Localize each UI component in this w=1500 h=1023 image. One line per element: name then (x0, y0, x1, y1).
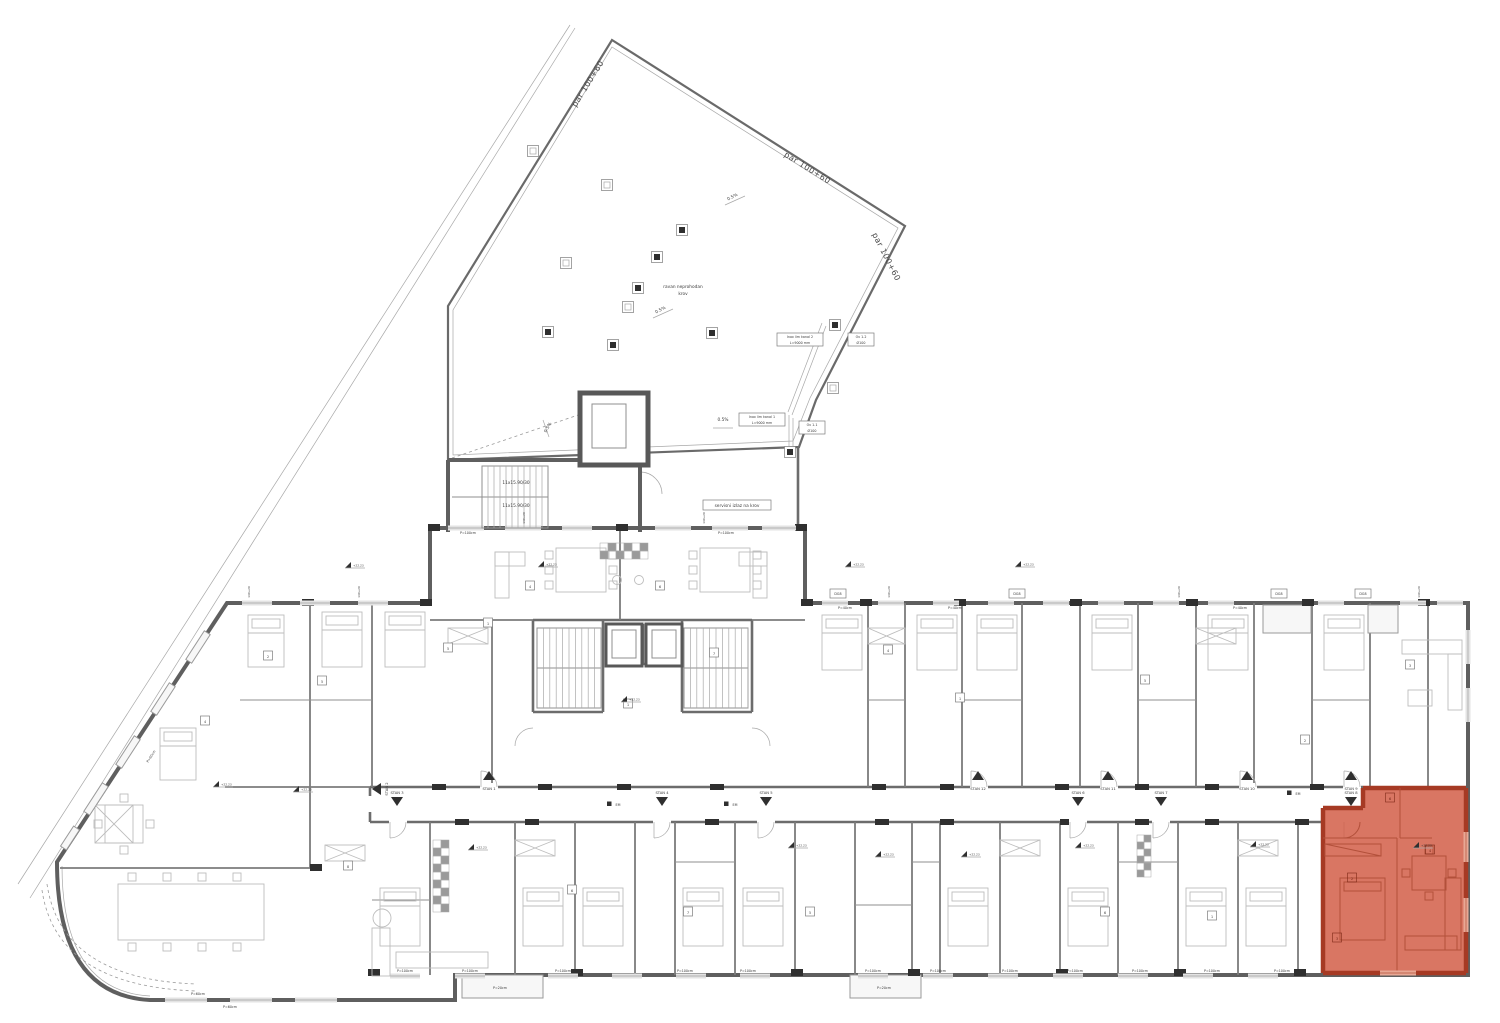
svg-text:4: 4 (529, 585, 531, 589)
svg-text:Ø100: Ø100 (808, 428, 817, 433)
svg-text:L=9000 mm: L=9000 mm (752, 421, 772, 425)
svg-text:3: 3 (1409, 664, 1411, 668)
svg-text:8: 8 (347, 865, 349, 869)
svg-text:STAN 7: STAN 7 (1154, 791, 1168, 795)
svg-text:+22.23: +22.23 (853, 563, 864, 567)
svg-text:6: 6 (1104, 911, 1106, 915)
svg-text:3: 3 (1336, 937, 1338, 941)
svg-text:5: 5 (447, 647, 449, 651)
svg-text:4: 4 (887, 649, 889, 653)
svg-text:P=40cm: P=40cm (1233, 606, 1247, 610)
svg-text:1: 1 (487, 622, 489, 626)
svg-text:+22.23: +22.23 (629, 698, 640, 702)
svg-text:2: 2 (1351, 877, 1353, 881)
svg-text:5: 5 (809, 911, 811, 915)
svg-text:P=100cm: P=100cm (397, 969, 413, 973)
svg-text:krov: krov (678, 291, 688, 297)
svg-text:P=100cm: P=100cm (1204, 969, 1220, 973)
svg-text:Inox lim kanal 1: Inox lim kanal 1 (749, 415, 775, 419)
svg-text:L=9000 mm: L=9000 mm (790, 341, 810, 345)
svg-text:+22.23: +22.23 (1023, 563, 1034, 567)
svg-text:P=100cm: P=100cm (740, 969, 756, 973)
svg-text:STAN 5: STAN 5 (759, 791, 773, 795)
svg-text:P=20cm: P=20cm (877, 986, 891, 990)
svg-text:7: 7 (713, 652, 715, 656)
svg-text:P=100cm: P=100cm (1067, 969, 1083, 973)
svg-text:1: 1 (1211, 915, 1213, 919)
svg-text:STAN 6: STAN 6 (1071, 791, 1085, 795)
svg-text:STAN 3: STAN 3 (390, 791, 404, 795)
svg-text:4: 4 (204, 720, 206, 724)
svg-text:140+20: 140+20 (887, 586, 891, 598)
svg-text:STAN 8: STAN 8 (1344, 791, 1358, 795)
svg-text:2: 2 (267, 655, 269, 659)
svg-text:P=100cm: P=100cm (1002, 969, 1018, 973)
svg-text:11x15.90/30: 11x15.90/30 (502, 503, 529, 509)
svg-text:11x15.90/30: 11x15.90/30 (502, 480, 529, 486)
svg-text:6: 6 (571, 889, 573, 893)
svg-text:+22.23: +22.23 (353, 564, 364, 568)
svg-text:6: 6 (1389, 797, 1391, 801)
svg-text:+22.23: +22.23 (1258, 843, 1269, 847)
svg-text:5: 5 (1144, 679, 1146, 683)
building-structure (18, 25, 1468, 1000)
svg-text:P=100cm: P=100cm (865, 969, 881, 973)
svg-text:DG8: DG8 (1275, 592, 1282, 596)
svg-text:Ov 1.2: Ov 1.2 (856, 335, 867, 339)
svg-text:+22.23: +22.23 (969, 853, 980, 857)
svg-text:+22.23: +22.23 (883, 853, 894, 857)
svg-text:P=100cm: P=100cm (930, 969, 946, 973)
svg-text:0.5%: 0.5% (718, 417, 729, 423)
svg-text:P=100cm: P=100cm (462, 969, 478, 973)
svg-text:STAN 2: STAN 2 (385, 782, 389, 795)
svg-text:140+20: 140+20 (1417, 586, 1421, 598)
svg-text:4: 4 (1429, 849, 1431, 853)
svg-text:ravan neprohodan: ravan neprohodan (663, 284, 703, 290)
svg-text:Ov 1.1: Ov 1.1 (807, 423, 818, 427)
floor-plan-svg: 243624554674521675618311EMEMEM+22.23+22.… (0, 0, 1500, 1023)
svg-text:EM: EM (733, 803, 738, 807)
svg-text:+22.23: +22.23 (546, 563, 557, 567)
svg-text:7: 7 (687, 911, 689, 915)
svg-text:+22.23: +22.23 (1083, 844, 1094, 848)
svg-text:140+20: 140+20 (1177, 586, 1181, 598)
svg-text:140+20: 140+20 (522, 512, 526, 524)
svg-text:P=100cm: P=100cm (1132, 969, 1148, 973)
highlighted-apartment: 2436 (1323, 788, 1466, 973)
svg-text:+22.23: +22.23 (1421, 844, 1432, 848)
svg-text:servisni izlaz na krov: servisni izlaz na krov (715, 503, 760, 509)
svg-text:140+20: 140+20 (702, 512, 706, 524)
svg-text:P=40cm: P=40cm (838, 606, 852, 610)
svg-text:5: 5 (321, 680, 323, 684)
svg-text:STAN 11: STAN 11 (1100, 787, 1115, 791)
svg-text:+22.23: +22.23 (301, 788, 312, 792)
svg-text:STAN 12: STAN 12 (970, 787, 985, 791)
svg-text:140+20: 140+20 (247, 586, 251, 598)
svg-text:P=100cm: P=100cm (677, 969, 693, 973)
svg-text:P=40cm: P=40cm (948, 606, 962, 610)
svg-text:P=100cm: P=100cm (460, 531, 476, 535)
svg-text:P=60cm: P=60cm (223, 1005, 237, 1009)
svg-text:P=100cm: P=100cm (718, 531, 734, 535)
svg-text:P=20cm: P=20cm (493, 986, 507, 990)
svg-text:Ø100: Ø100 (857, 340, 866, 345)
svg-text:P=100cm: P=100cm (555, 969, 571, 973)
svg-text:DG8: DG8 (1013, 592, 1020, 596)
svg-text:2: 2 (1304, 739, 1306, 743)
svg-text:DG8: DG8 (834, 592, 841, 596)
floor-plan-page: 243624554674521675618311EMEMEM+22.23+22.… (0, 0, 1500, 1023)
svg-text:+22.23: +22.23 (221, 783, 232, 787)
svg-text:1: 1 (959, 697, 961, 701)
svg-text:EM: EM (616, 803, 621, 807)
svg-text:EM: EM (1296, 792, 1301, 796)
svg-text:P=60cm: P=60cm (191, 992, 205, 996)
svg-text:P=100cm: P=100cm (1274, 969, 1290, 973)
svg-text:6: 6 (659, 585, 661, 589)
svg-text:140+20: 140+20 (357, 586, 361, 598)
svg-text:Inox lim kanal 2: Inox lim kanal 2 (787, 335, 813, 339)
svg-text:STAN 1: STAN 1 (482, 787, 495, 791)
svg-text:STAN 10: STAN 10 (1239, 787, 1255, 791)
svg-text:DG8: DG8 (1359, 592, 1366, 596)
svg-text:1: 1 (627, 703, 629, 707)
svg-text:+22.23: +22.23 (476, 846, 487, 850)
svg-text:+22.23: +22.23 (796, 844, 807, 848)
svg-text:STAN 4: STAN 4 (655, 791, 669, 795)
